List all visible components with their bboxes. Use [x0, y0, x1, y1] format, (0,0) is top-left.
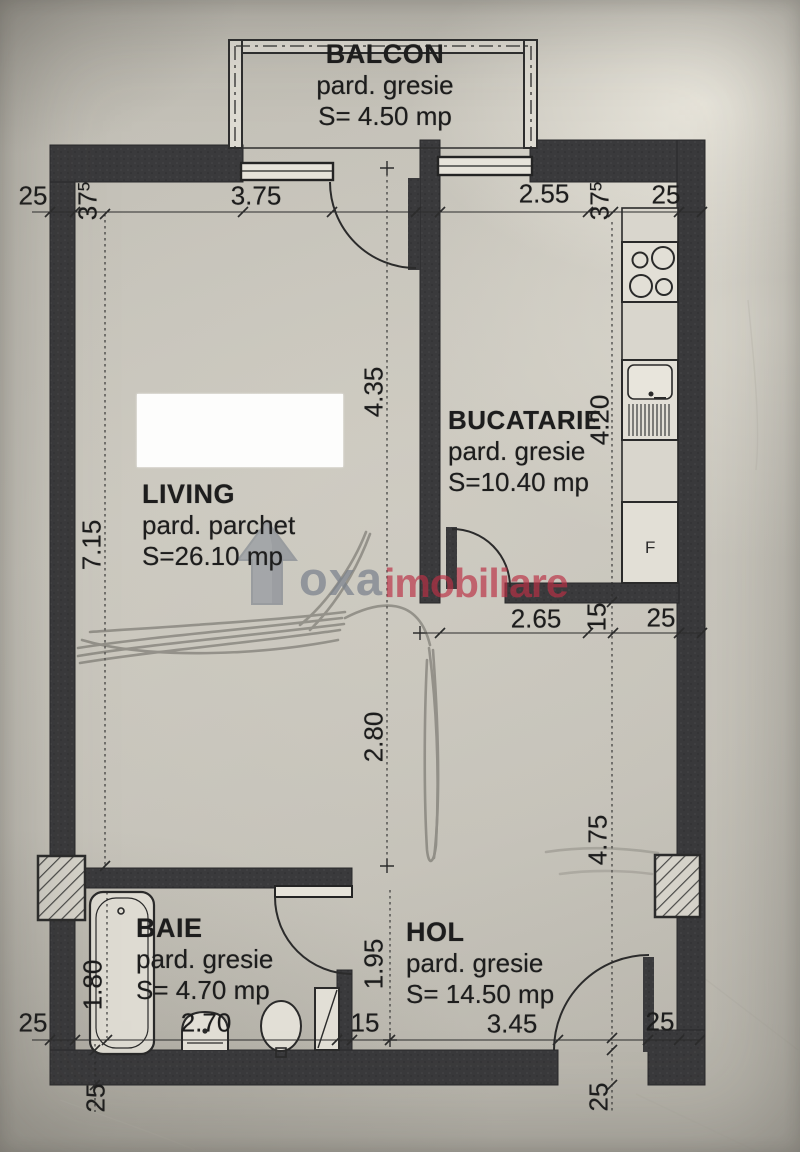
watermark-brand: oxa [299, 551, 383, 606]
dim-hall-right-height: 4.75 [583, 815, 614, 866]
dim-below-left-wall: 25 [81, 1084, 112, 1113]
dim-mid-right-wall: 25 [647, 603, 676, 634]
room-label-bucatarie: BUCATARIE pard. gresie S=10.40 mp [448, 404, 602, 498]
dim-living-lower-height: 2.80 [359, 712, 390, 763]
dim-below-right-wall: 25 [584, 1083, 615, 1112]
column-left [38, 856, 85, 920]
redaction-box [137, 394, 343, 467]
stove-icon [622, 242, 678, 302]
dim-wall-thickness-right: 375 [585, 182, 616, 220]
dim-living-height: 7.15 [77, 520, 108, 571]
room-area: S= 4.70 mp [136, 975, 273, 1006]
dim-living-width: 3.75 [231, 181, 282, 212]
balcony-door [330, 178, 420, 270]
room-area: S=10.40 mp [448, 467, 602, 498]
kitchen-sink-icon [622, 360, 678, 440]
fridge-icon: F [622, 502, 678, 583]
dim-value: 37 [73, 191, 103, 220]
dim-sup: 5 [75, 182, 94, 191]
room-area: S= 14.50 mp [406, 979, 554, 1010]
room-area: S=26.10 mp [142, 541, 295, 572]
dim-wall-15-mid: 15 [582, 603, 613, 632]
dim-top-right-wall: 25 [652, 180, 681, 211]
dim-hall-width: 3.45 [487, 1009, 538, 1040]
kitchen-window [438, 157, 532, 175]
dim-kitchen-height: 4.20 [585, 395, 616, 446]
svg-text:F: F [645, 538, 655, 557]
column-right [655, 855, 700, 917]
dim-wall-thickness-left: 375 [73, 182, 104, 220]
dim-living-upper-height: 4.35 [359, 367, 390, 418]
room-name: BUCATARIE [448, 404, 602, 436]
room-label-baie: BAIE pard. gresie S= 4.70 mp [136, 912, 273, 1006]
dim-value: 37 [585, 191, 615, 220]
entrance-door [554, 955, 654, 1052]
room-name: BAIE [136, 912, 273, 944]
dim-hall-left-height: 1.95 [359, 939, 390, 990]
dim-bottom-left-wall: 25 [19, 1008, 48, 1039]
room-name: BALCON [250, 38, 520, 70]
dim-wall-15-bottom: 15 [351, 1008, 380, 1039]
room-label-living: LIVING pard. parchet S=26.10 mp [142, 478, 295, 572]
dim-entry-offset: 25 [646, 1007, 675, 1038]
dim-bath-width: 2.70 [181, 1008, 232, 1039]
room-floor: pard. gresie [250, 70, 520, 101]
room-floor: pard. gresie [136, 944, 273, 975]
floor-plan-photo: F [0, 0, 800, 1152]
dim-top-left-wall: 25 [19, 181, 48, 212]
room-label-balcon: BALCON pard. gresie S= 4.50 mp [250, 38, 520, 132]
toilet-icon [261, 1001, 301, 1057]
dim-kitchen-width: 2.55 [519, 179, 570, 210]
dim-bath-height: 1.80 [78, 960, 109, 1011]
dim-sup: 5 [587, 182, 606, 191]
room-floor: pard. gresie [448, 436, 602, 467]
living-window [241, 163, 333, 180]
room-label-hol: HOL pard. gresie S= 14.50 mp [406, 916, 554, 1010]
room-area: S= 4.50 mp [250, 101, 520, 132]
room-floor: pard. gresie [406, 948, 554, 979]
room-floor: pard. parchet [142, 510, 295, 541]
room-name: HOL [406, 916, 554, 948]
dim-hall-top-width: 2.65 [511, 604, 562, 635]
watermark-suffix: imobiliare [384, 560, 568, 607]
room-name: LIVING [142, 478, 295, 510]
bathroom-door [275, 886, 352, 974]
